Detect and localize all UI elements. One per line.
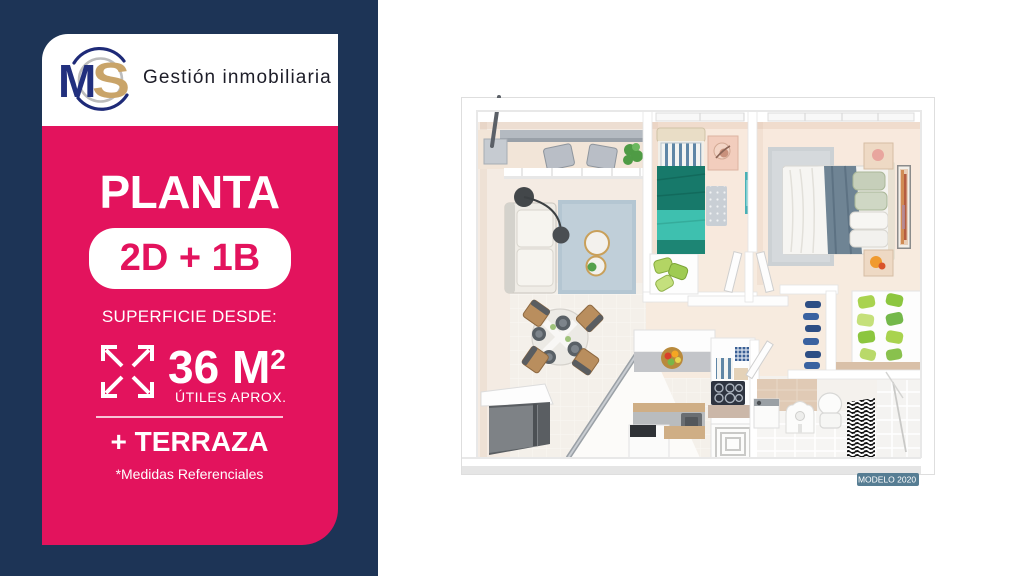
svg-text:S: S — [92, 53, 130, 109]
svg-text:M: M — [58, 55, 96, 107]
svg-text:MODELO 2020: MODELO 2020 — [858, 475, 916, 485]
